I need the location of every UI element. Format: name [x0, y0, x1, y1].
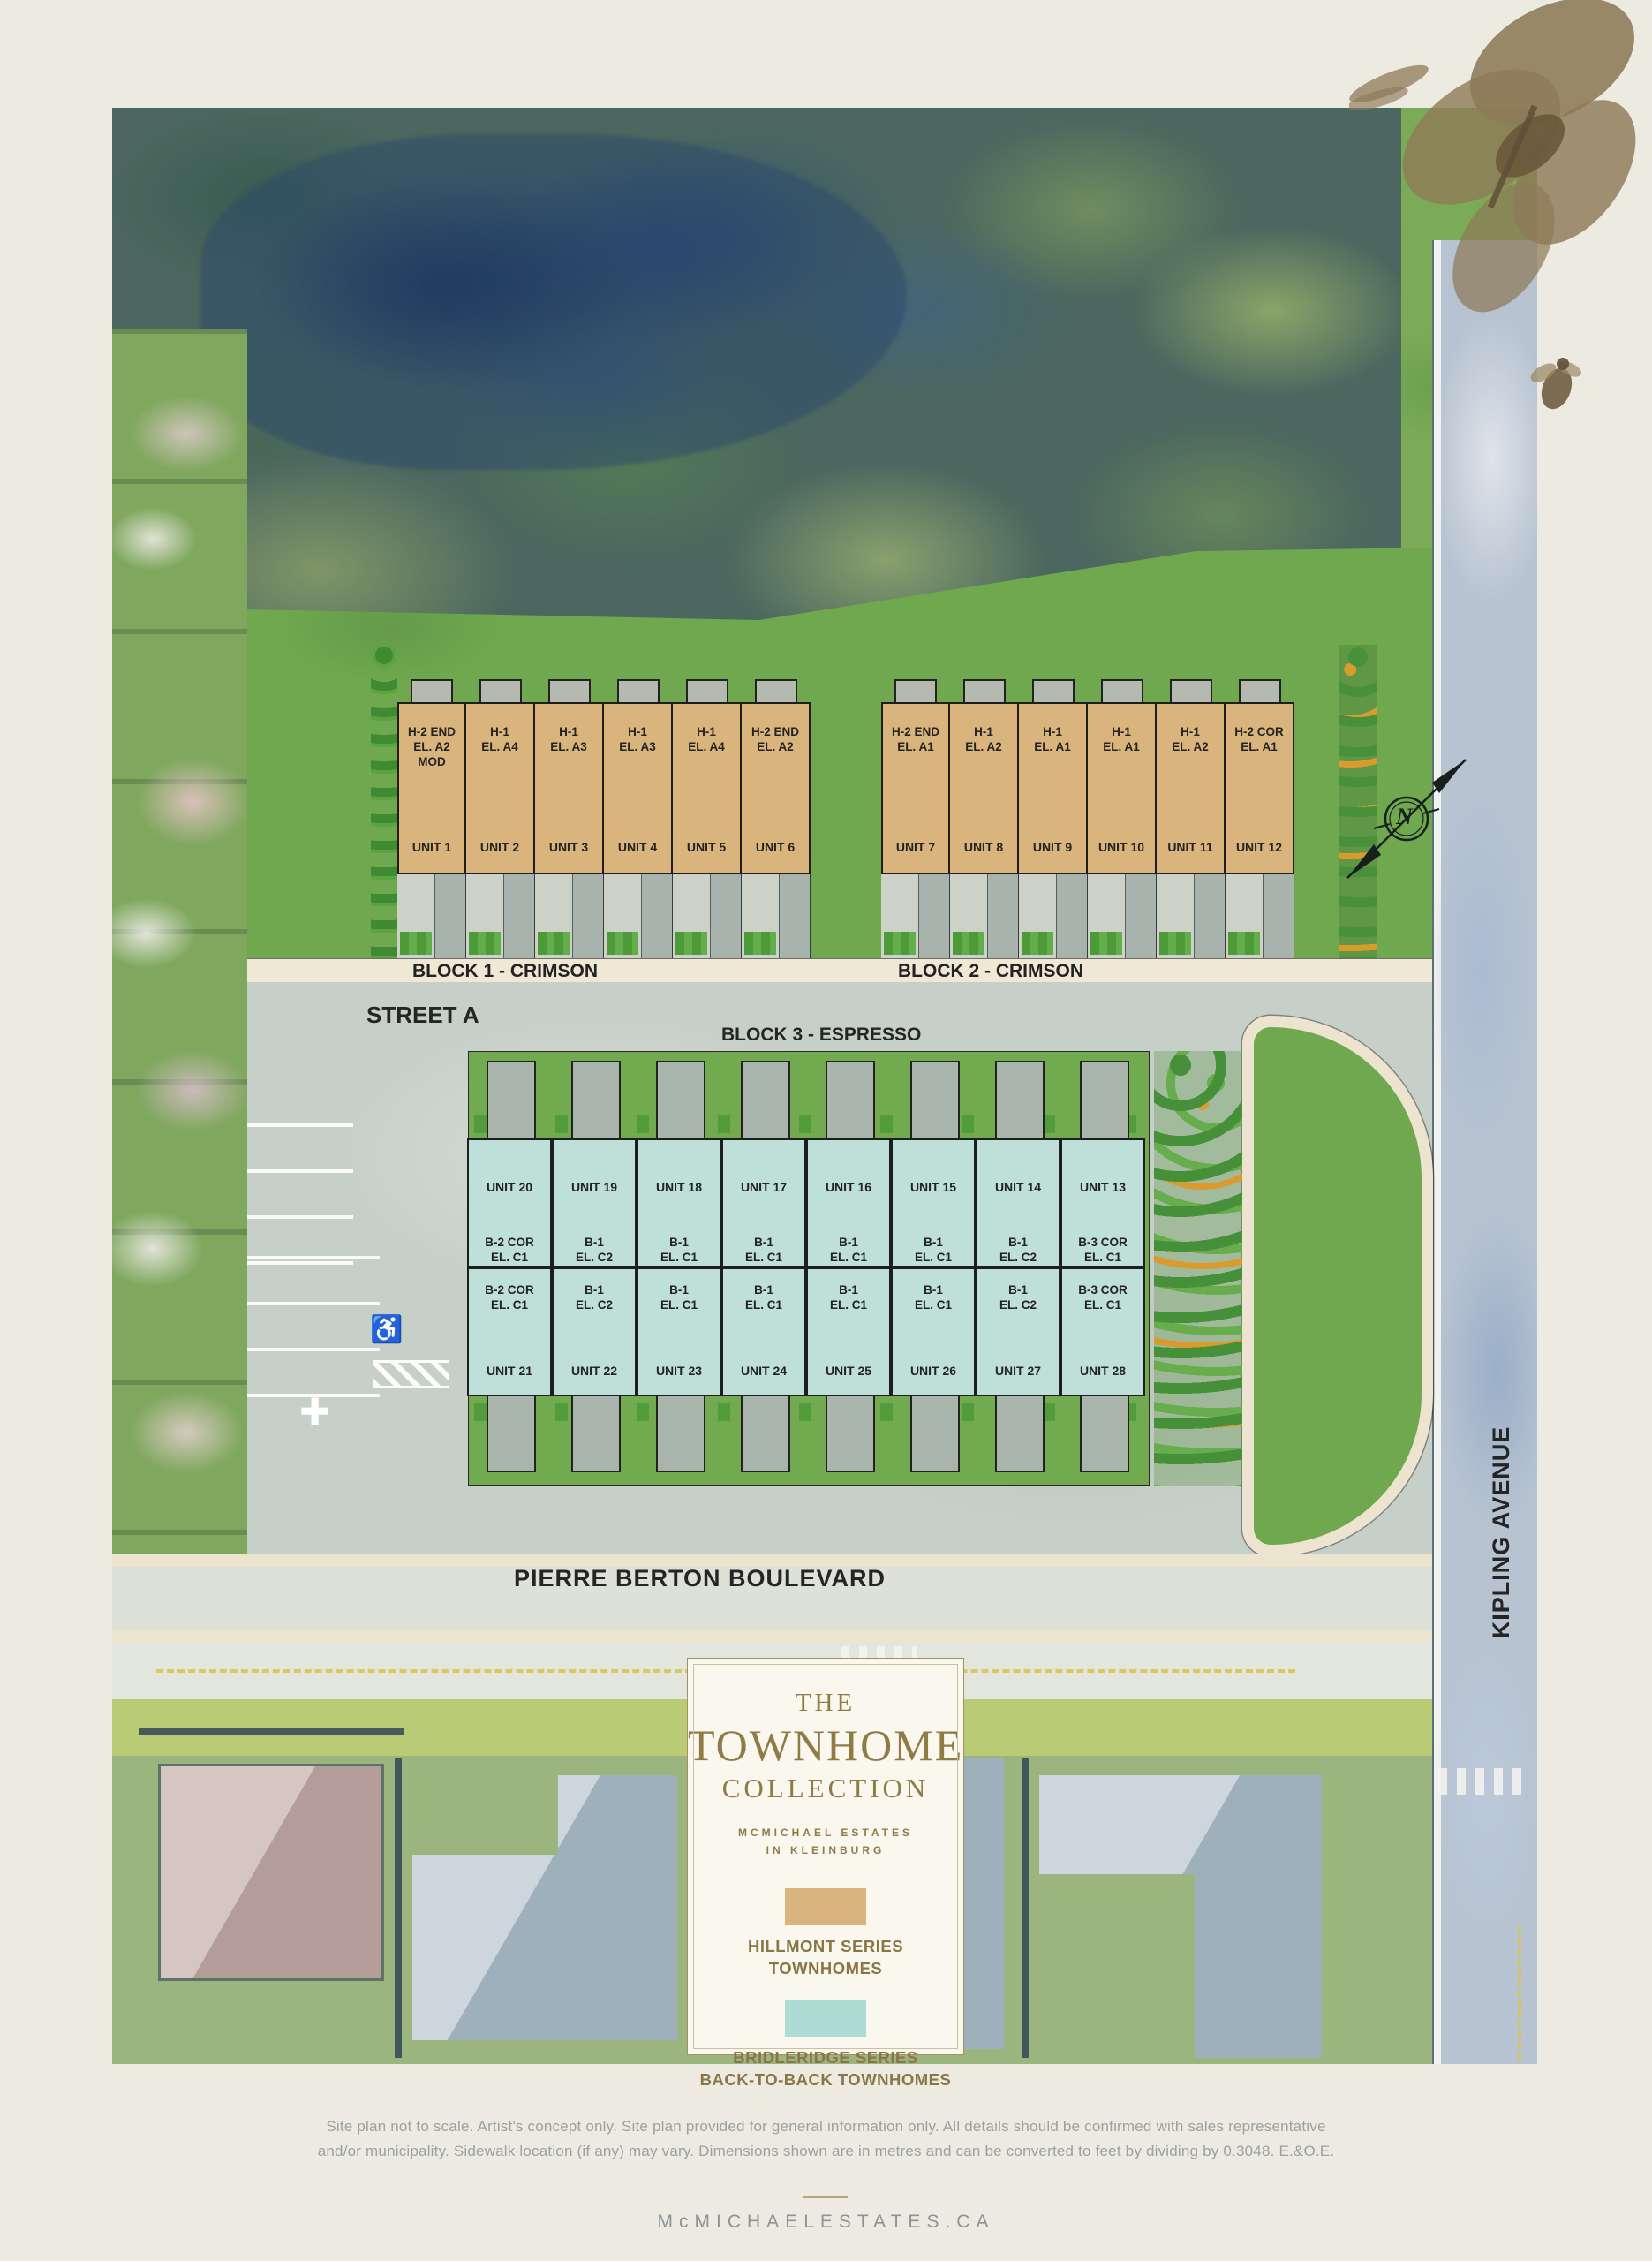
driveway-column: [977, 1396, 1062, 1485]
unit-elevation: EL. C2: [999, 1251, 1037, 1266]
unit-lot: UNIT 20B-2 COREL. C1: [467, 1138, 552, 1267]
legend-card: THE TOWNHOME COLLECTION MCMICHAEL ESTATE…: [687, 1658, 964, 2055]
unit-cell-unit-14: UNIT 14B-1EL. C2: [977, 1052, 1062, 1267]
unit-cell-unit-2: H-1EL. A4UNIT 2: [466, 679, 535, 958]
driveway: [397, 874, 466, 958]
unit-model: B-1: [839, 1283, 858, 1298]
legend-subtitle: MCMICHAEL ESTATES IN KLEINBURG: [688, 1824, 963, 1860]
unit-elevation: EL. A4: [481, 740, 518, 755]
unit-elevation: EL. C1: [660, 1298, 698, 1313]
unit-elevation: EL. A2: [1172, 740, 1209, 755]
unit-cell-unit-23: B-1EL. C1UNIT 23: [638, 1267, 723, 1485]
unit-model: B-1: [669, 1283, 689, 1298]
bridleridge-label: BRIDLERIDGE SERIES BACK-TO-BACK TOWNHOME…: [688, 2047, 963, 2091]
unit-model: B-1: [754, 1236, 773, 1251]
unit-model: H-1: [1112, 725, 1131, 740]
unit-elevation: EL. A3: [619, 740, 656, 755]
unit-lot: H-1EL. A1UNIT 9: [1017, 702, 1088, 874]
unit-elevation: EL. A1: [897, 740, 934, 755]
parking-stalls: [247, 1256, 380, 1406]
unit-cell-unit-20: UNIT 20B-2 COREL. C1: [469, 1052, 554, 1267]
unit-model: H-2 END: [892, 725, 939, 740]
legend-subtitle-line2: IN KLEINBURG: [766, 1844, 886, 1856]
unit-lot: B-2 COREL. C1UNIT 21: [467, 1267, 552, 1396]
bridleridge-swatch: [785, 2000, 866, 2037]
unit-lot: H-1EL. A3UNIT 3: [533, 702, 604, 874]
hedge: [1022, 1758, 1029, 2058]
roof-stub: [673, 679, 742, 702]
unit-number: UNIT 15: [910, 1180, 956, 1196]
unit-cell-unit-18: UNIT 18B-1EL. C1: [638, 1052, 723, 1267]
unit-number: UNIT 4: [618, 840, 657, 856]
unit-lot: B-1EL. C1UNIT 25: [806, 1267, 891, 1396]
unit-lot: H-1EL. A1UNIT 10: [1086, 702, 1157, 874]
unit-cell-unit-27: B-1EL. C2UNIT 27: [977, 1267, 1062, 1485]
unit-lot: B-1EL. C1UNIT 23: [637, 1267, 721, 1396]
unit-lot: UNIT 14B-1EL. C2: [976, 1138, 1060, 1267]
unit-cell-unit-3: H-1EL. A3UNIT 3: [535, 679, 604, 958]
unit-cell-unit-4: H-1EL. A3UNIT 4: [604, 679, 673, 958]
unit-model: B-1: [585, 1236, 604, 1251]
unit-lot: UNIT 17B-1EL. C1: [721, 1138, 806, 1267]
east-landscaping: [1154, 1051, 1242, 1486]
block3-top-row: UNIT 20B-2 COREL. C1UNIT 19B-1EL. C2UNIT…: [469, 1052, 1149, 1267]
unit-elevation: EL. C2: [576, 1298, 613, 1313]
kipling-avenue-label: KIPLING AVENUE: [1488, 1400, 1523, 1665]
block1-label: BLOCK 1 - CRIMSON: [412, 960, 598, 983]
unit-number: UNIT 7: [896, 840, 935, 856]
footer-divider: [803, 2196, 848, 2198]
unit-lot: B-1EL. C1UNIT 26: [891, 1267, 976, 1396]
hillmont-swatch: [785, 1888, 866, 1925]
unit-cell-unit-15: UNIT 15B-1EL. C1: [893, 1052, 977, 1267]
roof-stub: [1088, 679, 1157, 702]
unit-elevation: EL. C1: [830, 1298, 867, 1313]
hillmont-label: HILLMONT SERIES TOWNHOMES: [688, 1936, 963, 1980]
driveway: [466, 874, 535, 958]
bridleridge-label-line2: BACK-TO-BACK TOWNHOMES: [700, 2070, 952, 2089]
roof-stub: [742, 679, 811, 702]
unit-number: UNIT 1: [412, 840, 451, 856]
unit-cell-unit-13: UNIT 13B-3 COREL. C1: [1062, 1052, 1147, 1267]
unit-cell-unit-1: H-2 ENDEL. A2MODUNIT 1: [397, 679, 466, 958]
unit-lot: B-1EL. C2UNIT 22: [552, 1267, 637, 1396]
hedge: [139, 1728, 404, 1735]
unit-number: UNIT 18: [656, 1180, 702, 1196]
unit-number: UNIT 8: [964, 840, 1003, 856]
roof-stub: [397, 679, 466, 702]
unit-model: B-3 COR: [1078, 1283, 1128, 1298]
unit-number: UNIT 3: [549, 840, 588, 856]
unit-number: UNIT 2: [480, 840, 519, 856]
unit-number: UNIT 5: [687, 840, 726, 856]
driveway-column: [893, 1396, 977, 1485]
unit-model: B-3 COR: [1078, 1236, 1128, 1251]
butterfly-watercolor-icon: [1349, 0, 1652, 318]
driveway-column: [808, 1396, 893, 1485]
unit-model: H-2 END: [751, 725, 799, 740]
driveway-column: [723, 1052, 808, 1138]
bridleridge-label-line1: BRIDLERIDGE SERIES: [733, 2048, 917, 2067]
unit-number: UNIT 27: [995, 1364, 1041, 1380]
roof-stub: [1157, 679, 1226, 702]
house-roof: [161, 1766, 381, 1978]
unit-cell-unit-11: H-1EL. A2UNIT 11: [1157, 679, 1226, 958]
unit-elevation: EL. C2: [999, 1298, 1037, 1313]
junction-arrows-icon: ✚: [299, 1390, 330, 1433]
unit-elevation: EL. C1: [491, 1251, 528, 1266]
unit-number: UNIT 26: [910, 1364, 956, 1380]
unit-elevation: EL. C1: [1084, 1298, 1121, 1313]
unit-model: H-1: [490, 725, 509, 740]
unit-lot: UNIT 18B-1EL. C1: [637, 1138, 721, 1267]
bee-watercolor-icon: [1517, 344, 1596, 424]
unit-cell-unit-26: B-1EL. C1UNIT 26: [893, 1267, 977, 1485]
unit-number: UNIT 22: [571, 1364, 617, 1380]
legend-title-the: THE: [688, 1689, 963, 1718]
driveway: [535, 874, 604, 958]
driveway: [881, 874, 950, 958]
unit-elevation: EL. A2: [757, 740, 794, 755]
unit-elevation: EL. A2: [413, 740, 450, 755]
driveway-column: [1062, 1396, 1147, 1485]
unit-number: UNIT 21: [487, 1364, 532, 1380]
unit-lot: H-2 ENDEL. A2UNIT 6: [740, 702, 811, 874]
unit-lot: H-1EL. A2UNIT 8: [948, 702, 1019, 874]
unit-number: UNIT 12: [1236, 840, 1282, 856]
neighbourhood-west: [112, 329, 247, 1643]
unit-lot: UNIT 19B-1EL. C2: [552, 1138, 637, 1267]
unit-number: UNIT 10: [1098, 840, 1144, 856]
unit-cell-unit-12: H-2 COREL. A1UNIT 12: [1226, 679, 1294, 958]
unit-elevation: EL. A1: [1034, 740, 1071, 755]
driveway-column: [638, 1052, 723, 1138]
parking-stalls: [247, 1123, 353, 1265]
north-compass: N: [1340, 752, 1473, 885]
unit-number: UNIT 28: [1080, 1364, 1126, 1380]
unit-number: UNIT 17: [741, 1180, 787, 1196]
unit-model: B-1: [754, 1283, 773, 1298]
unit-number: UNIT 9: [1033, 840, 1072, 856]
unit-lot: UNIT 13B-3 COREL. C1: [1060, 1138, 1145, 1267]
hillmont-label-line2: TOWNHOMES: [769, 1959, 883, 1977]
unit-elevation: EL. C1: [915, 1298, 952, 1313]
unit-model: H-1: [559, 725, 578, 740]
unit-cell-unit-10: H-1EL. A1UNIT 10: [1088, 679, 1157, 958]
unit-number: UNIT 16: [826, 1180, 871, 1196]
unit-number: UNIT 13: [1080, 1180, 1126, 1196]
unit-elevation: EL. C1: [745, 1298, 782, 1313]
unit-lot: H-2 ENDEL. A2MODUNIT 1: [397, 702, 466, 874]
unit-elevation: EL. C1: [745, 1251, 782, 1266]
house-roof: [412, 1775, 677, 2040]
unit-model: B-1: [1008, 1236, 1028, 1251]
unit-model: H-1: [1043, 725, 1062, 740]
driveway-column: [554, 1396, 638, 1485]
street-a-label: STREET A: [366, 1002, 479, 1029]
unit-cell-unit-28: B-3 COREL. C1UNIT 28: [1062, 1267, 1147, 1485]
unit-model: B-1: [585, 1283, 604, 1298]
unit-number: UNIT 25: [826, 1364, 871, 1380]
unit-mod: MOD: [418, 755, 446, 770]
unit-cell-unit-9: H-1EL. A1UNIT 9: [1019, 679, 1088, 958]
hedge: [395, 1758, 402, 2058]
roof-stub: [950, 679, 1019, 702]
driveway-column: [723, 1396, 808, 1485]
unit-cell-unit-21: B-2 COREL. C1UNIT 21: [469, 1267, 554, 1485]
unit-elevation: EL. C1: [660, 1251, 698, 1266]
roof-stub: [535, 679, 604, 702]
unit-elevation: EL. C2: [576, 1251, 613, 1266]
east-lawn-island: [1242, 1016, 1433, 1556]
legend-title-collection: COLLECTION: [688, 1773, 963, 1804]
driveway: [1157, 874, 1226, 958]
unit-cell-unit-19: UNIT 19B-1EL. C2: [554, 1052, 638, 1267]
unit-elevation: EL. A1: [1241, 740, 1278, 755]
unit-cell-unit-8: H-1EL. A2UNIT 8: [950, 679, 1019, 958]
driveway-column: [1062, 1052, 1147, 1138]
roof-stub: [881, 679, 950, 702]
unit-model: H-2 COR: [1234, 725, 1284, 740]
driveway: [742, 874, 811, 958]
accessible-parking-icon: ♿: [370, 1314, 403, 1345]
disclaimer-line2: and/or municipality. Sidewalk location (…: [0, 2143, 1652, 2160]
unit-cell-unit-25: B-1EL. C1UNIT 25: [808, 1267, 893, 1485]
driveway: [1226, 874, 1294, 958]
unit-lot: UNIT 15B-1EL. C1: [891, 1138, 976, 1267]
unit-model: B-1: [839, 1236, 858, 1251]
unit-model: B-1: [669, 1236, 689, 1251]
unit-lot: H-1EL. A3UNIT 4: [602, 702, 673, 874]
unit-lot: H-2 COREL. A1UNIT 12: [1224, 702, 1294, 874]
block3-bottom-row: B-2 COREL. C1UNIT 21B-1EL. C2UNIT 22B-1E…: [469, 1267, 1149, 1485]
road-centerline: [1518, 1927, 1521, 2060]
unit-cell-unit-24: B-1EL. C1UNIT 24: [723, 1267, 808, 1485]
unit-lot: UNIT 16B-1EL. C1: [806, 1138, 891, 1267]
driveway-column: [977, 1052, 1062, 1138]
unit-model: H-1: [974, 725, 993, 740]
unit-cell-unit-16: UNIT 16B-1EL. C1: [808, 1052, 893, 1267]
block3-label: BLOCK 3 - ESPRESSO: [721, 1025, 921, 1046]
unit-elevation: EL. A2: [965, 740, 1002, 755]
unit-model: H-1: [628, 725, 647, 740]
unit-model: B-1: [1008, 1283, 1028, 1298]
website-url: McMICHAELESTATES.CA: [0, 2212, 1652, 2233]
block3-island: UNIT 20B-2 COREL. C1UNIT 19B-1EL. C2UNIT…: [468, 1051, 1150, 1486]
unit-model: B-2 COR: [485, 1236, 534, 1251]
unit-model: H-2 END: [408, 725, 456, 740]
unit-number: UNIT 24: [741, 1364, 787, 1380]
unit-model: H-1: [1181, 725, 1200, 740]
unit-cell-unit-5: H-1EL. A4UNIT 5: [673, 679, 742, 958]
block2-units: H-2 ENDEL. A1UNIT 7H-1EL. A2UNIT 8H-1EL.…: [881, 679, 1294, 958]
unit-number: UNIT 6: [756, 840, 795, 856]
driveway: [1019, 874, 1088, 958]
driveway: [950, 874, 1019, 958]
roof-stub: [1226, 679, 1294, 702]
unit-lot: H-1EL. A4UNIT 5: [671, 702, 742, 874]
unit-elevation: EL. C1: [915, 1251, 952, 1266]
unit-cell-unit-17: UNIT 17B-1EL. C1: [723, 1052, 808, 1267]
block1-units: H-2 ENDEL. A2MODUNIT 1H-1EL. A4UNIT 2H-1…: [397, 679, 811, 958]
unit-number: UNIT 11: [1167, 840, 1212, 856]
driveway-column: [469, 1052, 554, 1138]
legend-subtitle-line1: MCMICHAEL ESTATES: [738, 1826, 913, 1839]
house-roof: [1039, 1775, 1322, 2058]
unit-lot: H-1EL. A2UNIT 11: [1155, 702, 1226, 874]
unit-lot: B-3 COREL. C1UNIT 28: [1060, 1267, 1145, 1396]
unit-lot: B-1EL. C1UNIT 24: [721, 1267, 806, 1396]
unit-elevation: EL. A4: [688, 740, 725, 755]
roof-stub: [466, 679, 535, 702]
unit-elevation: EL. C1: [1084, 1251, 1121, 1266]
unit-elevation: EL. C1: [830, 1251, 867, 1266]
disclaimer-line1: Site plan not to scale. Artist's concept…: [0, 2118, 1652, 2136]
hillmont-label-line1: HILLMONT SERIES: [748, 1937, 903, 1955]
hatched-zone: [373, 1360, 449, 1388]
roof-stub: [604, 679, 673, 702]
driveway: [604, 874, 673, 958]
unit-lot: B-1EL. C2UNIT 27: [976, 1267, 1060, 1396]
crosswalk: [1438, 1768, 1530, 1795]
unit-number: UNIT 14: [995, 1180, 1041, 1196]
unit-cell-unit-22: B-1EL. C2UNIT 22: [554, 1267, 638, 1485]
driveway-column: [638, 1396, 723, 1485]
unit-model: H-1: [697, 725, 716, 740]
unit-model: B-1: [924, 1236, 943, 1251]
north-label: N: [1396, 804, 1413, 830]
unit-lot: H-2 ENDEL. A1UNIT 7: [881, 702, 950, 874]
unit-lot: H-1EL. A4UNIT 2: [464, 702, 535, 874]
driveway-column: [554, 1052, 638, 1138]
unit-model: B-2 COR: [485, 1283, 534, 1298]
unit-number: UNIT 19: [571, 1180, 617, 1196]
driveway: [1088, 874, 1157, 958]
roof-stub: [1019, 679, 1088, 702]
unit-elevation: EL. A3: [550, 740, 587, 755]
unit-model: B-1: [924, 1283, 943, 1298]
unit-number: UNIT 23: [656, 1364, 702, 1380]
block2-label: BLOCK 2 - CRIMSON: [898, 960, 1083, 983]
driveway: [673, 874, 742, 958]
unit-elevation: EL. A1: [1103, 740, 1140, 755]
driveway-column: [469, 1396, 554, 1485]
unit-cell-unit-7: H-2 ENDEL. A1UNIT 7: [881, 679, 950, 958]
unit-number: UNIT 20: [487, 1180, 532, 1196]
driveway-column: [893, 1052, 977, 1138]
legend-title-townhome: TOWNHOME: [688, 1720, 963, 1771]
driveway-column: [808, 1052, 893, 1138]
unit-elevation: EL. C1: [491, 1298, 528, 1313]
pierre-berton-label: PIERRE BERTON BOULEVARD: [514, 1565, 886, 1592]
unit-cell-unit-6: H-2 ENDEL. A2UNIT 6: [742, 679, 811, 958]
